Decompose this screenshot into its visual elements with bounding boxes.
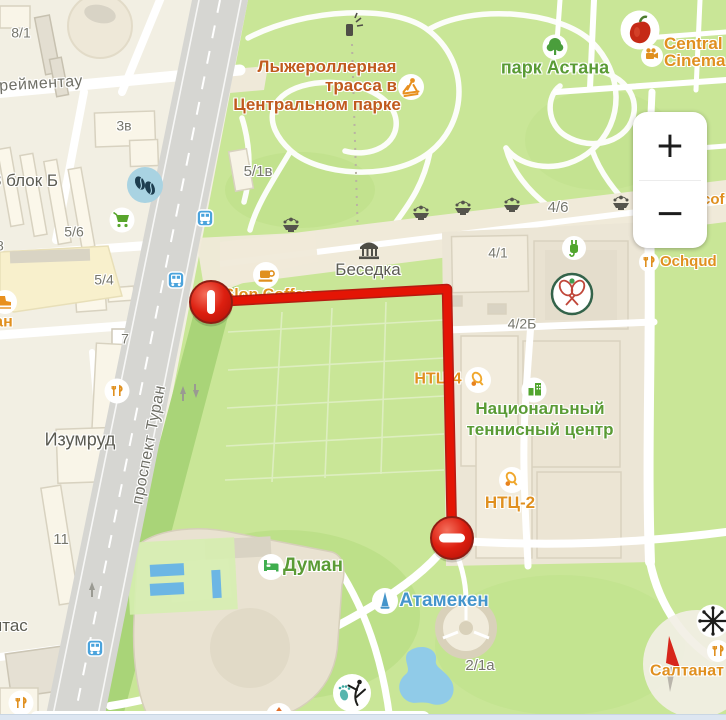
building-number: 4/2Б	[508, 317, 537, 332]
restaurant-icon[interactable]	[639, 252, 659, 272]
park-title-line1[interactable]: Лыжероллерная	[258, 58, 397, 76]
tree-icon[interactable]	[543, 35, 568, 60]
ntc2-label[interactable]: НТЦ-2	[485, 494, 535, 512]
building-number: 5/6	[64, 225, 83, 240]
ev-charging-icon[interactable]	[562, 236, 586, 260]
cinema-icon[interactable]	[641, 45, 663, 67]
park-title-line2[interactable]: трасса в	[325, 77, 397, 95]
building-number: 4/1	[488, 246, 507, 261]
building-number: 7	[121, 332, 129, 347]
park-astana-label[interactable]: парк Астана	[501, 59, 609, 78]
monument-obelisk-icon[interactable]	[372, 588, 398, 614]
restaurant-icon[interactable]	[105, 379, 130, 404]
tennis-club-icon[interactable]	[552, 274, 592, 314]
atameken-label[interactable]: Атамекен	[399, 591, 489, 611]
building-number: 8	[0, 239, 4, 254]
building-number: 11	[53, 532, 69, 548]
slon-coffee-label[interactable]: Slon Coffee	[224, 288, 313, 305]
district-izumrud: Изумруд	[45, 431, 116, 450]
poi-label-ochqud[interactable]: Ochqud	[660, 254, 717, 270]
gymnastics-icon[interactable]	[333, 674, 371, 712]
pepper-restaurant-icon[interactable]	[621, 11, 660, 50]
hotel-bed-icon[interactable]	[258, 554, 284, 580]
coffee-shop-icon[interactable]	[127, 167, 163, 203]
tennis-court-icon[interactable]	[499, 467, 525, 493]
saltanat-label[interactable]: Салтанат	[650, 664, 724, 681]
building-number: 5/4	[94, 273, 113, 288]
bus-stop-icon[interactable]	[197, 210, 213, 226]
national-tennis-label-line1[interactable]: Национальный	[475, 400, 604, 418]
besedka-label[interactable]: Беседка	[335, 261, 400, 279]
building-number: 4/6	[548, 200, 569, 216]
restaurant-icon[interactable]	[9, 691, 34, 716]
zoom-in-button[interactable]: +	[633, 112, 707, 180]
ntc4-label[interactable]: НТЦ-4	[414, 372, 461, 389]
bus-stop-icon[interactable]	[168, 272, 184, 288]
building-number: 5/1в	[244, 164, 273, 180]
map-canvas[interactable]: 8/1 Ерейментау 3в 3 блок Б 5/6 8 5/4 лан…	[0, 0, 726, 720]
coffee-cup-icon[interactable]	[253, 262, 279, 288]
supermarket-cart-icon[interactable]	[110, 208, 135, 233]
building-number: 8/1	[11, 26, 30, 41]
national-tennis-label-line2[interactable]: теннисный центр	[466, 421, 613, 439]
district-fragment: ытас	[0, 617, 28, 635]
bottom-bar	[0, 714, 726, 720]
zoom-out-button[interactable]: −	[633, 181, 707, 249]
zoom-control: + −	[633, 112, 707, 248]
duman-label[interactable]: Думан	[283, 556, 343, 576]
tennis-court-icon[interactable]	[465, 367, 491, 393]
park-title-line3[interactable]: Центральном парке	[233, 96, 401, 114]
building-number-block-b: 3 блок Б	[0, 172, 58, 190]
building-number: 2/1а	[465, 658, 494, 674]
central-cinema-label-line2[interactable]: Cinema	[664, 52, 725, 70]
poi-label-lan[interactable]: лан	[0, 315, 13, 332]
skier-icon[interactable]	[398, 74, 424, 100]
bus-stop-icon[interactable]	[87, 640, 103, 656]
building-number: 3в	[116, 119, 131, 134]
